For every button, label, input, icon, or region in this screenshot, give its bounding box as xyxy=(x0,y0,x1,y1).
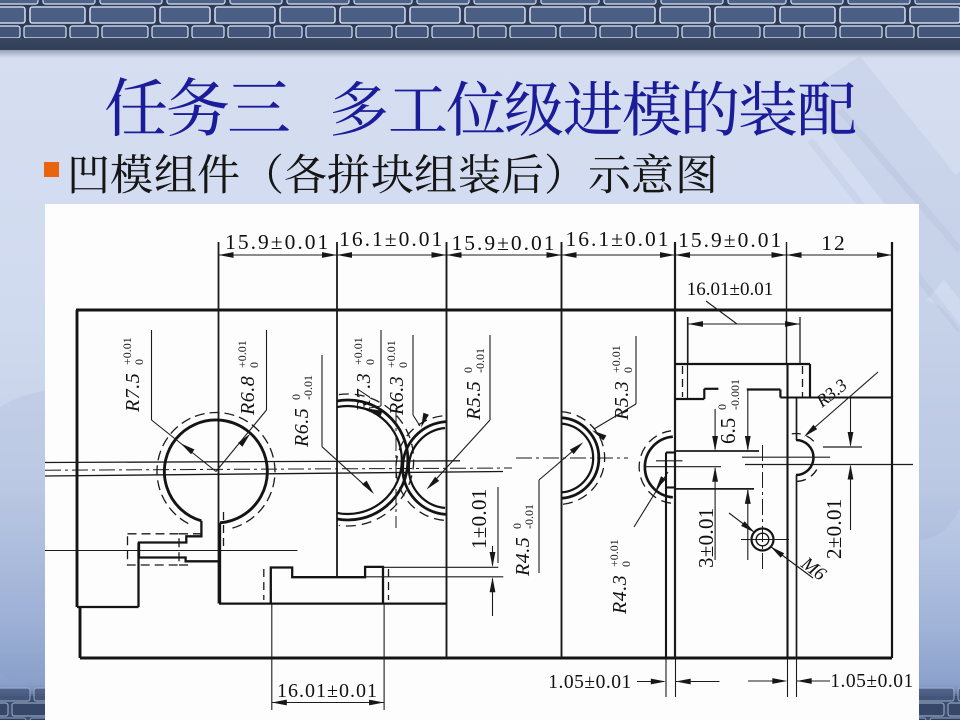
svg-text:12: 12 xyxy=(821,231,847,255)
svg-text:R6.8: R6.8 xyxy=(237,376,259,416)
svg-text:16.1±0.01: 16.1±0.01 xyxy=(565,227,670,251)
svg-text:R5.3: R5.3 xyxy=(611,381,633,421)
svg-text:15.9±0.01: 15.9±0.01 xyxy=(678,228,783,252)
svg-text:R7.5: R7.5 xyxy=(122,373,144,413)
svg-text:-0.01: -0.01 xyxy=(473,348,487,373)
svg-text:16.01±0.01: 16.01±0.01 xyxy=(687,279,773,300)
svg-text:-0.01: -0.01 xyxy=(522,504,536,529)
svg-text:15.9±0.01: 15.9±0.01 xyxy=(225,230,330,254)
svg-text:15.9±0.01: 15.9±0.01 xyxy=(451,231,556,255)
svg-text:0: 0 xyxy=(247,362,261,368)
svg-text:1.05±0.01: 1.05±0.01 xyxy=(830,671,913,692)
svg-text:0: 0 xyxy=(363,359,377,365)
svg-text:-0.001: -0.001 xyxy=(728,379,742,410)
svg-text:1.05±0.01: 1.05±0.01 xyxy=(548,672,631,693)
svg-text:16.01±0.01: 16.01±0.01 xyxy=(277,680,378,702)
svg-text:0: 0 xyxy=(396,362,410,368)
svg-text:2±0.01: 2±0.01 xyxy=(822,498,846,559)
svg-text:R6.5: R6.5 xyxy=(291,408,313,448)
svg-text:3±0.01: 3±0.01 xyxy=(694,507,718,568)
svg-text:-0.01: -0.01 xyxy=(301,375,315,400)
svg-text:0: 0 xyxy=(132,359,146,365)
svg-text:16.1±0.01: 16.1±0.01 xyxy=(339,227,444,251)
svg-text:R4.5: R4.5 xyxy=(512,537,534,577)
svg-text:6.5: 6.5 xyxy=(716,418,740,444)
svg-text:R6.3: R6.3 xyxy=(386,376,408,416)
svg-text:0: 0 xyxy=(619,561,633,567)
svg-text:R4.3: R4.3 xyxy=(609,575,631,615)
svg-text:0: 0 xyxy=(621,367,635,373)
svg-text:R5.5: R5.5 xyxy=(463,381,485,421)
svg-text:R7.3: R7.3 xyxy=(353,373,375,413)
svg-text:1±0.01: 1±0.01 xyxy=(467,488,491,549)
svg-text:0: 0 xyxy=(715,404,729,410)
